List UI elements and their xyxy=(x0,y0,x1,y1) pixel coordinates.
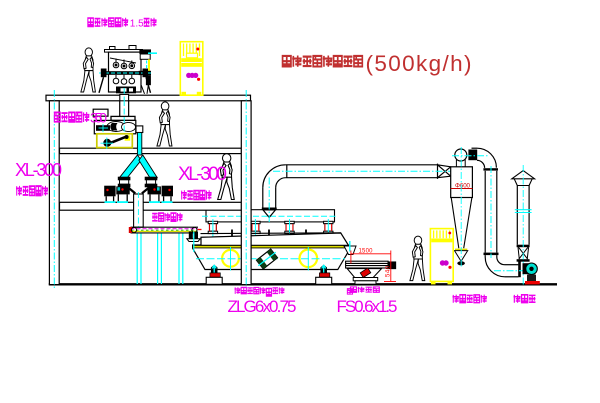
svg-text:350: 350 xyxy=(90,110,107,126)
svg-text:1500: 1500 xyxy=(359,249,374,255)
svg-text:ZLG6x0.75: ZLG6x0.75 xyxy=(228,297,297,316)
svg-text:(500kg/h): (500kg/h) xyxy=(366,51,472,76)
svg-text:1.5: 1.5 xyxy=(130,18,144,29)
svg-text:XL-300: XL-300 xyxy=(15,160,62,180)
svg-text:XL-300: XL-300 xyxy=(178,164,227,185)
svg-text:FS0.6x1.5: FS0.6x1.5 xyxy=(337,297,398,316)
svg-text:540: 540 xyxy=(386,265,392,277)
